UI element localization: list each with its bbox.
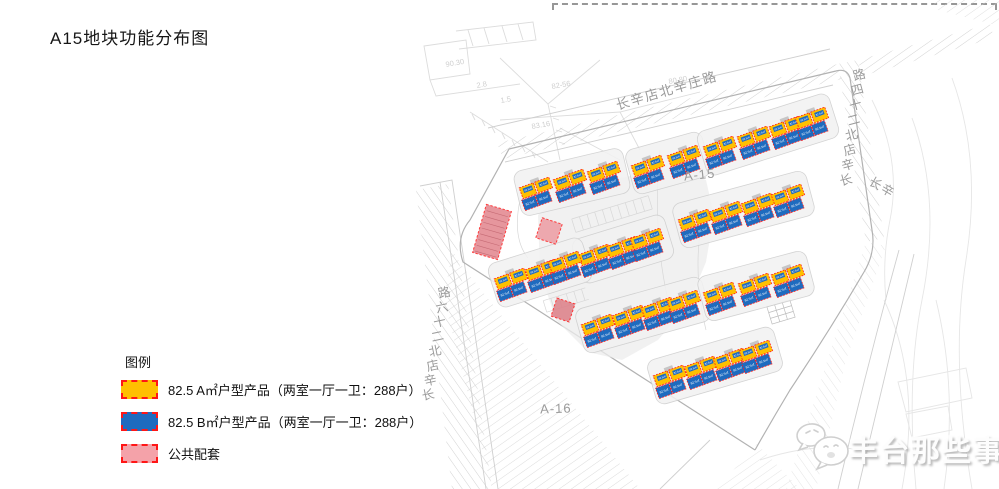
type-b-swatch [121, 412, 158, 431]
type-a-label: 82.5 A㎡户型产品（两室一厅一卫：288户） [168, 380, 422, 399]
survey-number: 1.5 [500, 94, 512, 105]
road-label-char: 长 [421, 387, 437, 403]
survey-number: 90.30 [445, 57, 465, 69]
survey-number: 2.8 [476, 79, 488, 90]
chat-bubbles-icon [793, 418, 853, 473]
watermark: 丰台那些事 [793, 418, 993, 478]
type-a-swatch [121, 380, 158, 399]
plot-label: A-16 [540, 400, 572, 416]
watermark-text: 丰台那些事 [849, 428, 999, 470]
type-b-label: 82.5 B㎡户型产品（两室一厅一卫：288户） [168, 412, 422, 431]
survey-number: 82-56 [551, 79, 571, 91]
legend: 图例 82.5 A㎡户型产品（两室一厅一卫：288户） 82.5 B㎡户型产品（… [121, 352, 422, 476]
legend-item-type-a: 82.5 A㎡户型产品（两室一厅一卫：288户） [121, 380, 422, 399]
survey-number: 83.16 [531, 119, 551, 131]
legend-heading: 图例 [125, 352, 422, 371]
plot-label: A-15 [683, 165, 716, 183]
legend-item-type-b: 82.5 B㎡户型产品（两室一厅一卫：288户） [121, 412, 422, 431]
amenity-swatch [121, 444, 158, 463]
amenity-label: 公共配套 [168, 444, 220, 463]
public-amenity-block [473, 204, 512, 259]
road-label-char: 辛 [423, 372, 438, 388]
legend-item-amenity: 公共配套 [121, 444, 422, 463]
road-label-char: 长 [838, 172, 854, 189]
slide-canvas: A15地块功能分布图 [0, 0, 999, 489]
